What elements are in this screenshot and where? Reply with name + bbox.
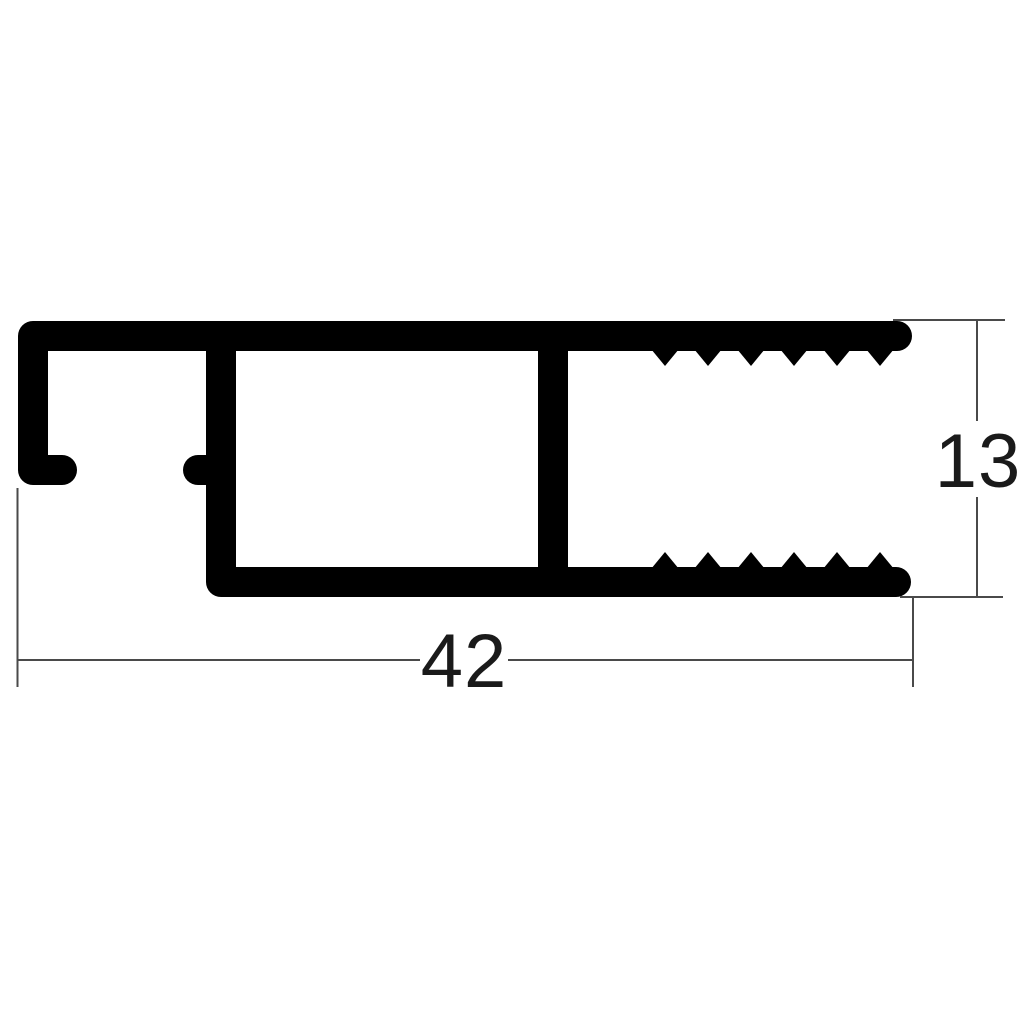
height-dimension: 13: [893, 320, 1021, 597]
serration-tooth: [651, 552, 679, 569]
serration-teeth-top: [651, 349, 894, 366]
profile-shape: [33, 336, 897, 582]
serration-tooth: [694, 552, 722, 569]
serration-teeth-bottom: [651, 552, 894, 569]
serration-tooth: [866, 552, 894, 569]
serration-tooth: [737, 349, 765, 366]
technical-drawing: 42 13: [0, 0, 1024, 1024]
serration-tooth: [823, 349, 851, 366]
serration-tooth: [780, 552, 808, 569]
serration-tooth: [866, 349, 894, 366]
top-flange-and-left-wall: [33, 336, 897, 470]
serration-tooth: [651, 349, 679, 366]
serration-tooth: [694, 349, 722, 366]
width-dimension-label: 42: [421, 619, 508, 704]
serration-tooth: [780, 349, 808, 366]
serration-tooth: [823, 552, 851, 569]
drawing-canvas: 42 13: [0, 0, 1024, 1024]
serration-tooth: [737, 552, 765, 569]
height-dimension-label: 13: [935, 419, 1022, 504]
